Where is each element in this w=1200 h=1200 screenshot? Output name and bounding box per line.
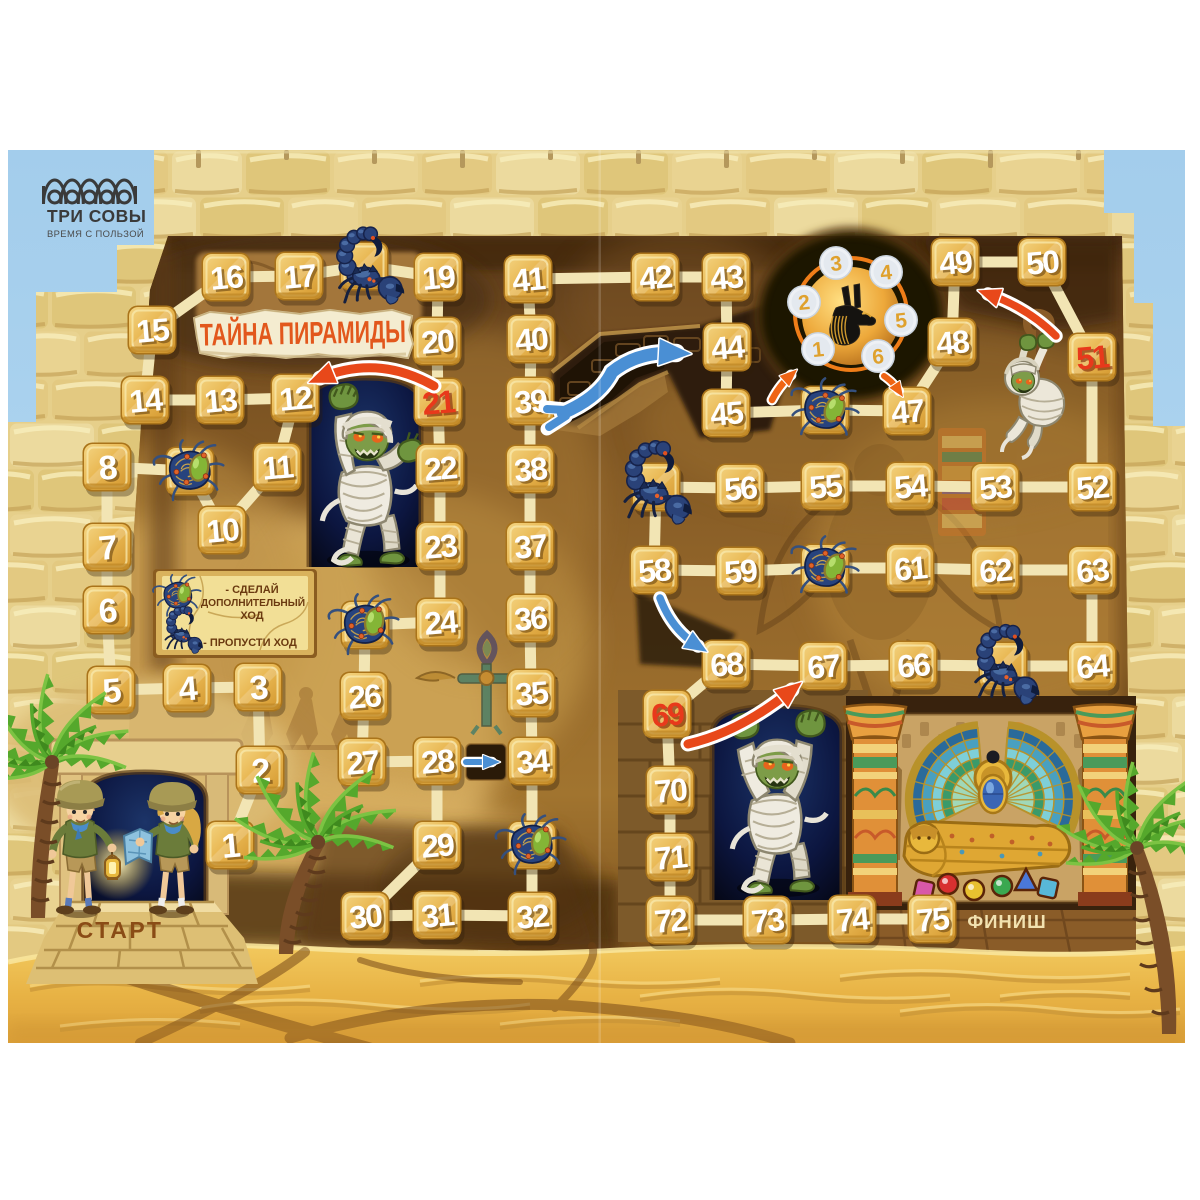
svg-text:71: 71: [653, 838, 689, 877]
svg-text:12: 12: [278, 379, 314, 418]
svg-text:45: 45: [709, 394, 745, 433]
svg-text:63: 63: [1075, 551, 1111, 590]
svg-text:ХОД: ХОД: [240, 610, 263, 622]
svg-text:61: 61: [893, 549, 929, 588]
svg-text:3: 3: [829, 252, 843, 276]
svg-text:47: 47: [890, 392, 926, 431]
svg-text:11: 11: [261, 448, 295, 487]
svg-text:36: 36: [513, 599, 549, 638]
svg-text:48: 48: [935, 323, 971, 362]
svg-text:17: 17: [282, 257, 318, 296]
svg-text:28: 28: [420, 742, 456, 781]
svg-text:ВРЕМЯ С ПОЛЬЗОЙ: ВРЕМЯ С ПОЛЬЗОЙ: [47, 228, 144, 239]
svg-text:ТРИ СОВЫ: ТРИ СОВЫ: [47, 206, 146, 226]
svg-text:69: 69: [650, 695, 686, 734]
svg-text:24: 24: [423, 603, 460, 642]
svg-text:40: 40: [514, 320, 550, 359]
svg-text:14: 14: [128, 381, 165, 420]
svg-text:2: 2: [797, 291, 811, 315]
svg-text:55: 55: [808, 467, 844, 506]
svg-text:70: 70: [653, 771, 689, 810]
svg-text:75: 75: [915, 900, 951, 939]
svg-text:74: 74: [835, 900, 872, 939]
svg-text:38: 38: [513, 450, 549, 489]
svg-text:6: 6: [871, 345, 885, 369]
svg-text:ФИНИШ: ФИНИШ: [967, 911, 1046, 932]
svg-text:ТАЙНА ПИРАМИДЫ: ТАЙНА ПИРАМИДЫ: [200, 314, 407, 353]
svg-text:72: 72: [653, 901, 689, 940]
svg-text:51: 51: [1075, 338, 1111, 377]
svg-text:52: 52: [1075, 468, 1111, 507]
svg-text:42: 42: [638, 258, 674, 297]
svg-text:53: 53: [978, 468, 1014, 507]
svg-text:19: 19: [421, 258, 457, 297]
svg-text:49: 49: [938, 243, 974, 282]
svg-text:16: 16: [209, 258, 245, 297]
svg-text:66: 66: [896, 646, 932, 685]
svg-text:34: 34: [515, 742, 552, 781]
svg-text:35: 35: [514, 674, 550, 713]
svg-text:50: 50: [1025, 243, 1061, 282]
svg-text:10: 10: [205, 511, 241, 550]
svg-text:64: 64: [1075, 647, 1112, 686]
svg-text:58: 58: [637, 551, 673, 590]
svg-text:68: 68: [709, 645, 745, 684]
svg-text:32: 32: [515, 897, 551, 936]
svg-text:67: 67: [806, 647, 842, 686]
svg-text:41: 41: [511, 260, 547, 299]
svg-text:26: 26: [347, 677, 383, 716]
svg-text:15: 15: [135, 311, 171, 350]
svg-text:59: 59: [723, 552, 759, 591]
svg-text:56: 56: [723, 469, 759, 508]
svg-text:СТАРТ: СТАРТ: [77, 917, 164, 943]
svg-text:- ПРОПУСТИ ХОД: - ПРОПУСТИ ХОД: [203, 637, 297, 649]
svg-text:22: 22: [423, 449, 459, 488]
svg-text:43: 43: [709, 258, 745, 297]
svg-text:73: 73: [750, 901, 786, 940]
svg-text:29: 29: [420, 826, 456, 865]
svg-text:20: 20: [420, 322, 456, 361]
svg-text:30: 30: [348, 897, 384, 936]
svg-text:44: 44: [710, 328, 747, 367]
svg-text:37: 37: [513, 527, 549, 566]
svg-text:ДОПОЛНИТЕЛЬНЫЙ: ДОПОЛНИТЕЛЬНЫЙ: [201, 596, 305, 609]
svg-text:54: 54: [893, 467, 930, 506]
svg-text:13: 13: [203, 381, 239, 420]
svg-text:62: 62: [978, 551, 1014, 590]
svg-text:31: 31: [420, 896, 456, 935]
svg-text:- СДЕЛАЙ: - СДЕЛАЙ: [225, 583, 278, 596]
svg-text:23: 23: [423, 527, 459, 566]
